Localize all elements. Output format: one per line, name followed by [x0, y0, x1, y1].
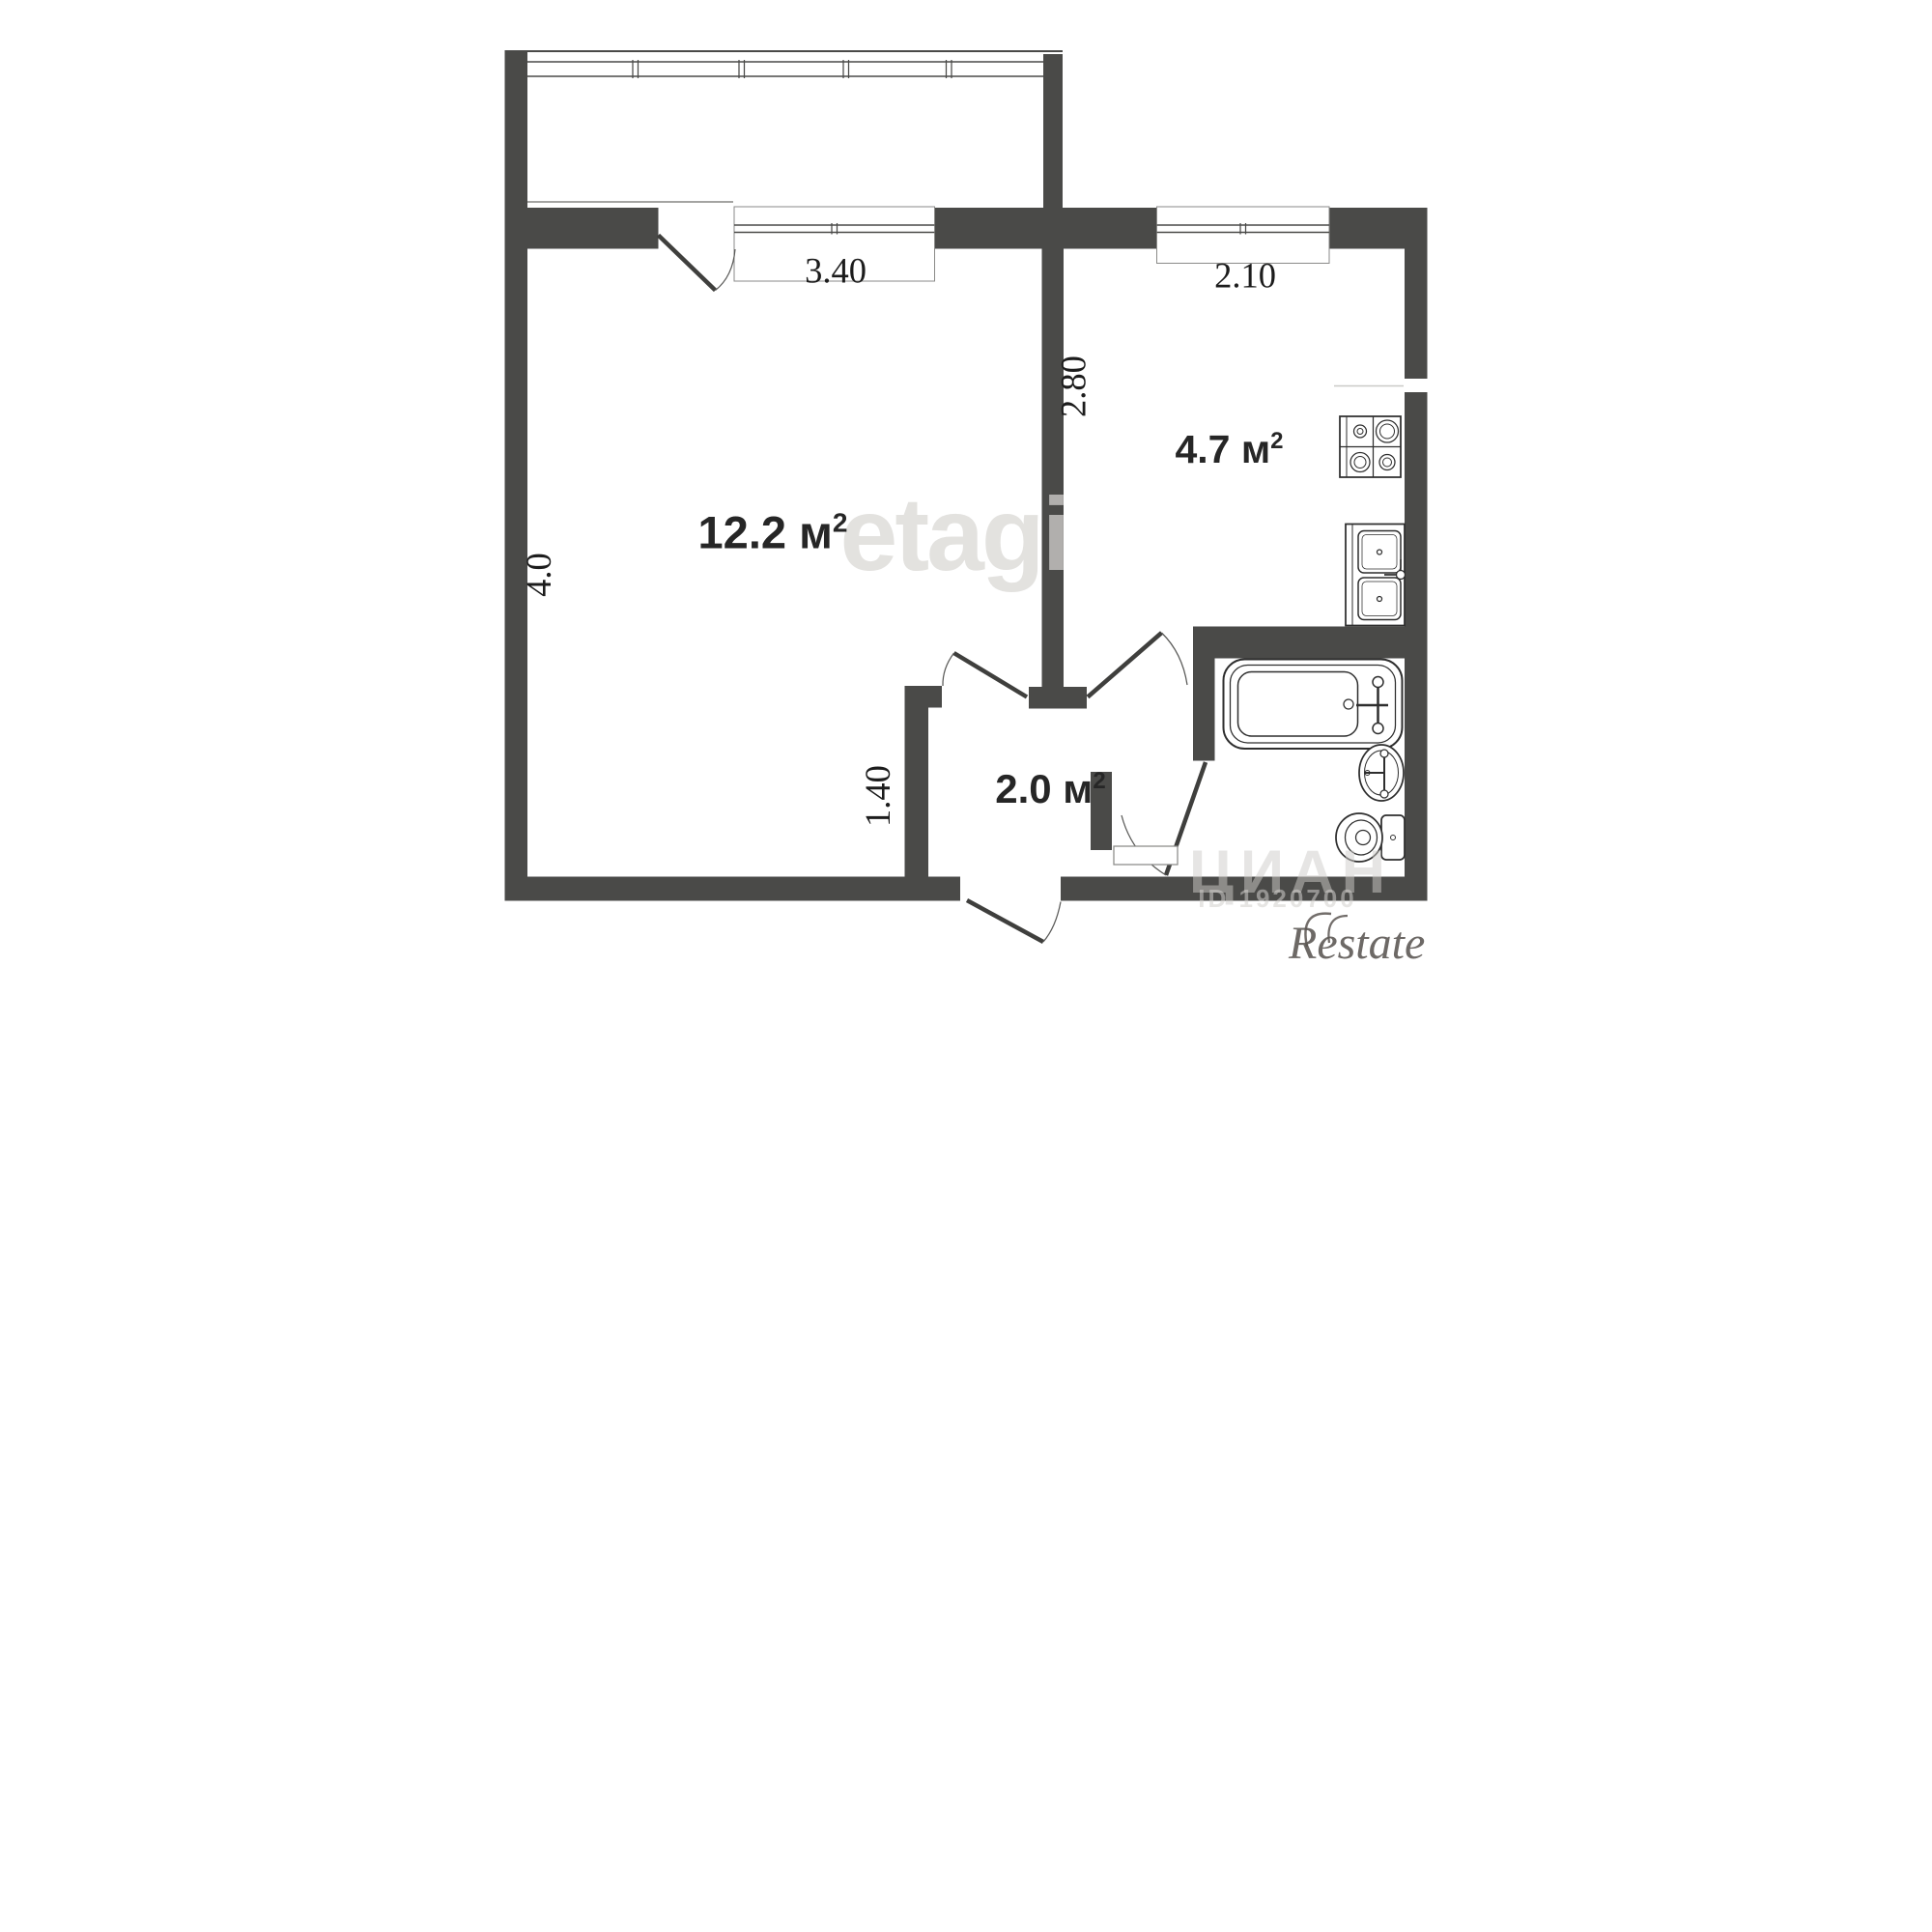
- balcony-door: [659, 236, 736, 291]
- hallway-area-sup: 2: [1093, 768, 1105, 794]
- dim-living-window: 3.40: [805, 251, 867, 291]
- kitchen-area-sup: 2: [1270, 428, 1283, 454]
- dim-hallway-width: 1.40: [858, 765, 897, 827]
- floor-plan-canvas: etagi ЦИАН ID 1920700 3.40 2.10 2.80 4.0…: [483, 0, 1449, 966]
- living-kitchen-divider-wall: [1042, 249, 1065, 688]
- kitchen-area-value: 4.7 м: [1175, 427, 1270, 471]
- bathroom-left-wall: [1193, 627, 1215, 761]
- dim-kitchen-window: 2.10: [1214, 256, 1276, 296]
- stove-icon: [1340, 416, 1401, 477]
- balcony-glazing-icon: [527, 60, 1043, 78]
- dim-living-wall: 4.0: [519, 553, 558, 597]
- living-area-value: 12.2 м: [698, 507, 833, 558]
- right-outer-wall: [1405, 208, 1428, 901]
- balcony-right-wall: [1043, 54, 1063, 208]
- area-label-kitchen: 4.7 м2: [1175, 427, 1283, 471]
- living-area-sup: 2: [833, 508, 848, 538]
- top-wall-right-segment: [1329, 208, 1428, 249]
- hallway-wall-stub: [905, 686, 943, 708]
- watermark-cian-id: ID 1920700: [1198, 884, 1356, 913]
- kitchen-sink-icon: [1346, 525, 1406, 626]
- bath-sink-icon: [1359, 745, 1404, 801]
- brand-logo-text: Restate: [1288, 918, 1425, 966]
- balcony: [505, 51, 1064, 208]
- kitchen-to-hallway-door: [1088, 633, 1187, 697]
- living-to-hallway-door: [943, 653, 1027, 697]
- bathtub-icon: [1224, 660, 1403, 750]
- brand-logo-restate: Restate: [1288, 914, 1425, 966]
- bathroom-door-threshold: [1114, 846, 1178, 865]
- floor-plan-page: etagi ЦИАН ID 1920700 3.40 2.10 2.80 4.0…: [483, 0, 1449, 966]
- top-wall-left-segment: [527, 208, 659, 249]
- hallway-left-wall: [905, 686, 929, 877]
- divider-wall-foot: [1029, 687, 1087, 709]
- kitchen-window: [1157, 207, 1330, 264]
- kitchen-bathroom-wall: [1193, 627, 1405, 659]
- entrance-door: [967, 900, 1061, 942]
- area-label-hallway: 2.0 м2: [995, 766, 1105, 811]
- watermark-etagi: etagi: [840, 476, 1068, 592]
- kitchen-vent-notch: [1334, 379, 1429, 392]
- hallway-area-value: 2.0 м: [995, 766, 1093, 811]
- area-label-living-room: 12.2 м2: [698, 507, 848, 558]
- bottom-wall-left: [505, 877, 961, 901]
- left-outer-wall: [505, 51, 528, 901]
- dim-kitchen-wall: 2.80: [1054, 355, 1094, 417]
- top-wall-middle-segment: [935, 208, 1157, 249]
